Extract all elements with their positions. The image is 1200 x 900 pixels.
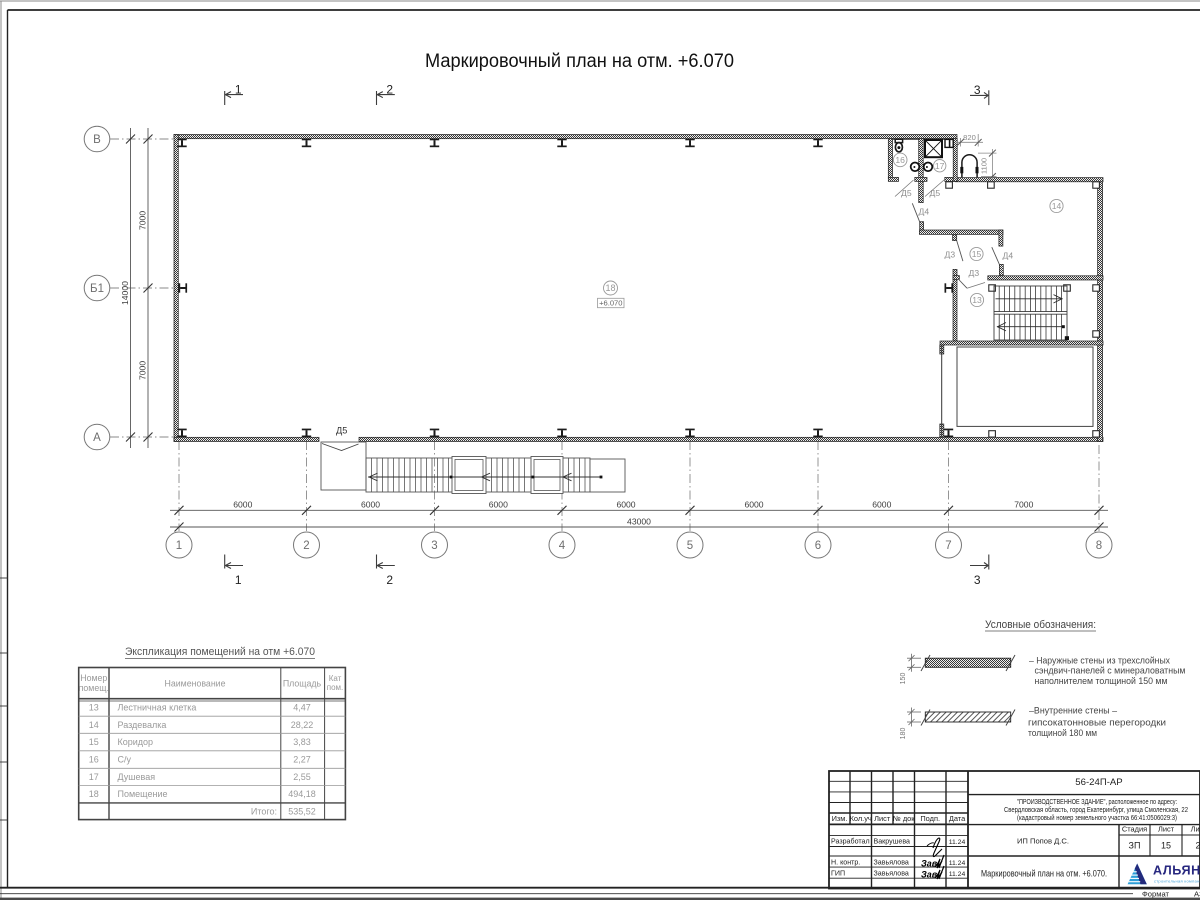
svg-text:820: 820 — [963, 133, 976, 142]
svg-text:17: 17 — [89, 772, 99, 782]
svg-text:15: 15 — [972, 249, 982, 259]
svg-text:Лис: Лис — [1191, 825, 1200, 834]
svg-text:Стадия: Стадия — [1122, 825, 1147, 834]
svg-text:18: 18 — [605, 283, 615, 293]
svg-text:7000: 7000 — [138, 211, 148, 230]
svg-text:56-24П-АР: 56-24П-АР — [1075, 777, 1122, 788]
svg-text:пом.: пом. — [327, 683, 344, 692]
svg-text:Маркировочный план на отм. +6.: Маркировочный план на отм. +6.070. — [981, 869, 1107, 880]
svg-text:Подп.: Подп. — [920, 814, 940, 823]
svg-text:Д4: Д4 — [1003, 251, 1014, 261]
svg-text:ЗП: ЗП — [1129, 841, 1141, 851]
svg-text:Завьялова: Завьялова — [874, 859, 909, 867]
svg-text:Д5: Д5 — [336, 426, 347, 436]
svg-text:Площадь: Площадь — [283, 679, 322, 689]
svg-text:Изм.: Изм. — [832, 814, 848, 823]
svg-text:3: 3 — [974, 83, 981, 97]
svg-text:7: 7 — [945, 540, 951, 552]
svg-text:Кат: Кат — [329, 674, 342, 683]
svg-text:Номер: Номер — [80, 673, 107, 683]
svg-text:16: 16 — [89, 755, 99, 765]
svg-text:Свердловская область, город Ек: Свердловская область, город Екатеринбург… — [1004, 806, 1188, 814]
svg-text:17: 17 — [935, 161, 945, 171]
svg-text:3,83: 3,83 — [293, 737, 311, 747]
svg-text:28,22: 28,22 — [291, 720, 314, 730]
svg-text:№ док: № док — [893, 814, 915, 823]
svg-text:13: 13 — [972, 295, 982, 305]
svg-text:С/у: С/у — [118, 755, 132, 765]
svg-text:Б1: Б1 — [90, 283, 104, 295]
svg-text:Лист: Лист — [1158, 825, 1175, 834]
svg-text:2: 2 — [303, 540, 309, 552]
svg-text:1: 1 — [235, 83, 242, 97]
svg-text:Помещение: Помещение — [118, 789, 168, 799]
svg-text:Раздевалка: Раздевалка — [118, 720, 167, 730]
svg-text:помещ.: помещ. — [79, 683, 109, 693]
svg-text:2: 2 — [386, 83, 393, 97]
svg-text:Д5: Д5 — [930, 188, 941, 198]
svg-text:Разработал: Разработал — [831, 838, 870, 846]
svg-text:Душевая: Душевая — [118, 772, 156, 782]
svg-text:14000: 14000 — [120, 281, 130, 305]
svg-text:1: 1 — [176, 540, 182, 552]
svg-text:Д4: Д4 — [919, 207, 930, 217]
svg-text:3: 3 — [431, 540, 437, 552]
svg-text:1100: 1100 — [980, 158, 989, 174]
svg-text:толщиной 180 мм: толщиной 180 мм — [1028, 728, 1097, 739]
svg-text:6000: 6000 — [233, 500, 252, 510]
svg-text:15: 15 — [89, 737, 99, 747]
svg-text:7000: 7000 — [1014, 500, 1033, 510]
svg-text:АЛЬЯНС: АЛЬЯНС — [1153, 864, 1200, 878]
svg-text:8: 8 — [1096, 540, 1102, 552]
svg-text:1: 1 — [235, 573, 242, 587]
svg-text:Д3: Д3 — [969, 268, 980, 278]
svg-text:11.24: 11.24 — [949, 860, 966, 867]
svg-text:"ПРОИЗВОДСТВЕННОЕ ЗДАНИЕ", рас: "ПРОИЗВОДСТВЕННОЕ ЗДАНИЕ", расположенное… — [1017, 799, 1177, 806]
svg-text:6000: 6000 — [872, 500, 891, 510]
svg-text:–Внутренние стены –: –Внутренние стены – — [1029, 706, 1118, 717]
svg-text:ИП Попов Д.С.: ИП Попов Д.С. — [1017, 837, 1069, 846]
svg-text:строительная компания: строительная компания — [1154, 879, 1200, 884]
svg-text:Условные обозначения:: Условные обозначения: — [985, 619, 1096, 631]
svg-text:4: 4 — [559, 540, 566, 552]
svg-text:14: 14 — [89, 720, 99, 730]
svg-text:2,55: 2,55 — [293, 772, 311, 782]
svg-text:Дата: Дата — [949, 814, 966, 823]
svg-text:наполнителем толщиной 150 мм: наполнителем толщиной 150 мм — [1035, 676, 1168, 687]
svg-text:Итого:: Итого: — [251, 807, 277, 817]
svg-text:150: 150 — [900, 673, 907, 685]
svg-text:6000: 6000 — [361, 500, 380, 510]
svg-text:сэндвич-панелей с минераловатн: сэндвич-панелей с минераловатным — [1035, 666, 1186, 677]
svg-text:4,47: 4,47 — [293, 703, 311, 713]
svg-text:5: 5 — [687, 540, 693, 552]
svg-text:Лист: Лист — [874, 814, 891, 823]
svg-text:ГИП: ГИП — [831, 870, 845, 878]
svg-text:13: 13 — [89, 703, 99, 713]
svg-text:Коридор: Коридор — [118, 737, 154, 747]
svg-text:3: 3 — [974, 573, 981, 587]
svg-text:15: 15 — [1161, 841, 1171, 851]
svg-text:2,27: 2,27 — [293, 755, 311, 765]
svg-text:Маркировочный план на отм. +6.: Маркировочный план на отм. +6.070 — [425, 51, 734, 72]
svg-text:11.24: 11.24 — [949, 839, 966, 846]
svg-text:14: 14 — [1052, 201, 1062, 211]
svg-text:7000: 7000 — [138, 361, 148, 380]
svg-text:6000: 6000 — [489, 500, 508, 510]
svg-text:18: 18 — [89, 789, 99, 799]
svg-text:6: 6 — [815, 540, 821, 552]
svg-text:Формат: Формат — [1142, 890, 1169, 899]
svg-text:+6.070: +6.070 — [599, 299, 622, 308]
svg-text:Завьялова: Завьялова — [874, 870, 909, 878]
svg-text:Д3: Д3 — [945, 250, 956, 260]
svg-text:Экспликация помещений на отм +: Экспликация помещений на отм +6.070 — [125, 646, 315, 658]
svg-text:43000: 43000 — [627, 517, 651, 527]
svg-text:А: А — [93, 432, 101, 444]
svg-text:Наименование: Наименование — [165, 679, 226, 689]
svg-text:Кол.уч: Кол.уч — [850, 814, 872, 823]
svg-text:2: 2 — [1195, 841, 1200, 851]
svg-text:2: 2 — [386, 573, 393, 587]
svg-text:(кадастровый номер земельного: (кадастровый номер земельного участка 66… — [1017, 814, 1177, 822]
svg-text:Лестничная клетка: Лестничная клетка — [118, 703, 197, 713]
svg-text:494,18: 494,18 — [288, 789, 316, 799]
svg-text:В: В — [93, 134, 101, 146]
svg-text:Вакрушева: Вакрушева — [874, 838, 911, 846]
svg-text:16: 16 — [895, 155, 905, 165]
svg-text:180: 180 — [900, 728, 907, 740]
svg-text:Н. контр.: Н. контр. — [831, 859, 860, 867]
svg-text:6000: 6000 — [616, 500, 635, 510]
svg-text:535,52: 535,52 — [288, 807, 316, 817]
svg-text:11.24: 11.24 — [949, 871, 966, 878]
svg-text:6000: 6000 — [744, 500, 763, 510]
svg-text:гипсокатонновые перегородки: гипсокатонновые перегородки — [1028, 718, 1166, 729]
svg-text:А3: А3 — [1194, 890, 1200, 899]
